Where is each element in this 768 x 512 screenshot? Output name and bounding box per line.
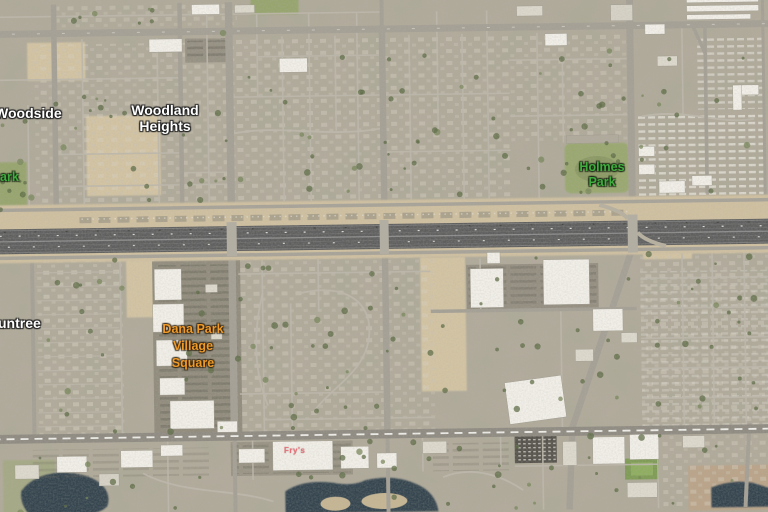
satellite-map-canvas[interactable]: Woodside WoodlandHeights ark HolmesPark …: [0, 0, 768, 512]
photo-grain: [0, 0, 768, 512]
aerial-imagery: [0, 0, 768, 512]
